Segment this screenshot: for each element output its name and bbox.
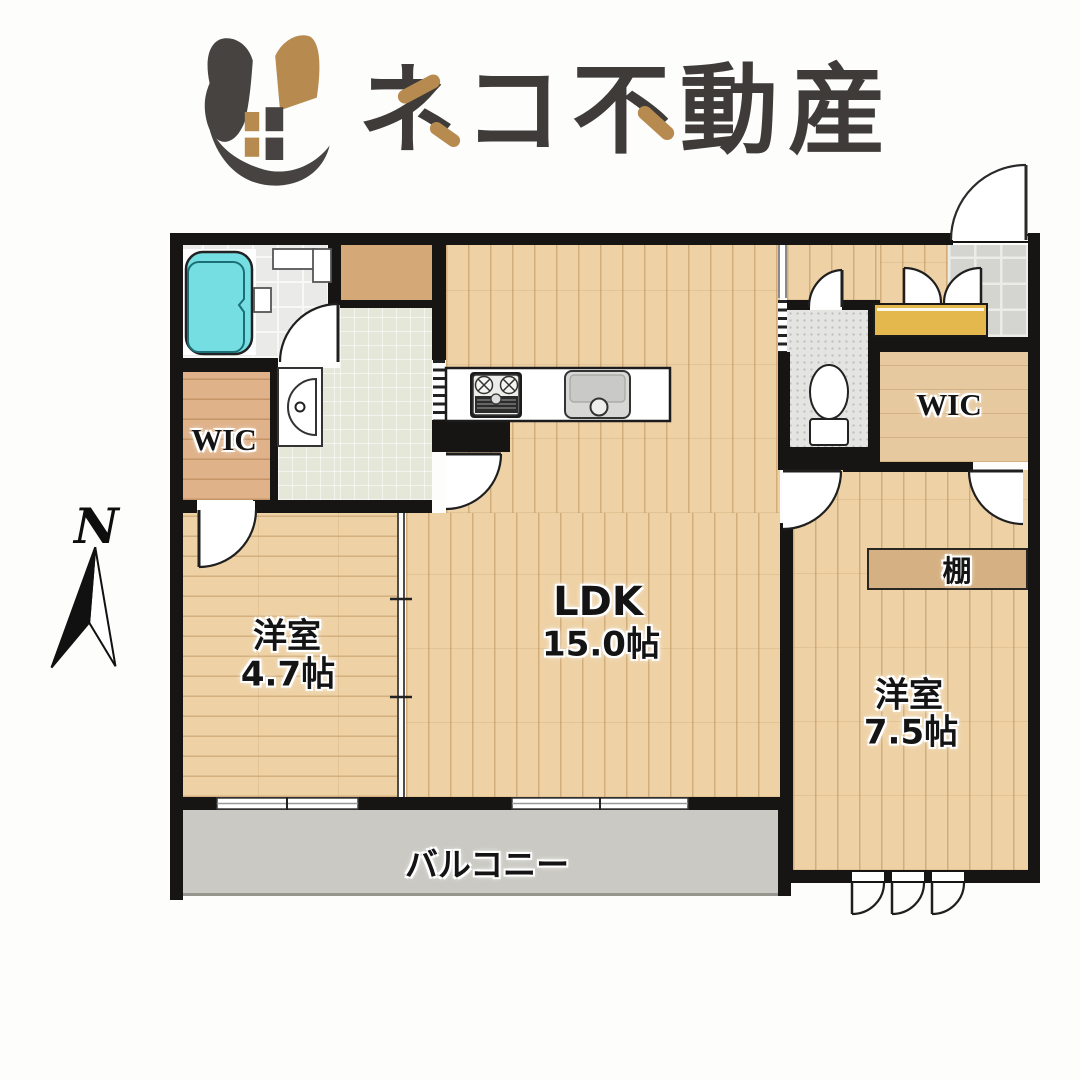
ldk-area: 15.0帖 (542, 617, 660, 666)
entrance-door (951, 165, 1026, 240)
wic-right-label: WIC (916, 387, 981, 423)
floorplan-page: ネコ不動産 N (0, 0, 1080, 1080)
toilet-door (809, 270, 842, 307)
bathroom-door (280, 304, 338, 362)
bath-counter (254, 249, 331, 312)
washroom-door (446, 454, 501, 509)
bedroom-large-area: 7.5帖 (864, 705, 958, 754)
window-sliding (512, 797, 688, 810)
wic-left-label: WIC (191, 422, 256, 458)
south-doors (852, 872, 964, 914)
shelf-label: 棚 (942, 548, 971, 590)
bedroom-large-door (783, 471, 841, 529)
toilet-icon (810, 365, 848, 445)
window-sliding (217, 797, 358, 810)
wic-right-door (969, 471, 1023, 524)
kitchen-sink-icon (565, 371, 630, 418)
bedroom-small-door (197, 501, 256, 567)
gas-stove-icon (470, 372, 522, 418)
balcony-label: バルコニー (405, 838, 569, 886)
washbasin-icon (278, 368, 322, 446)
fixtures-overlay (0, 0, 1080, 1080)
bathtub-icon (186, 252, 252, 354)
bedroom-small-area: 4.7帖 (241, 647, 335, 696)
cabinet-door (904, 268, 981, 303)
